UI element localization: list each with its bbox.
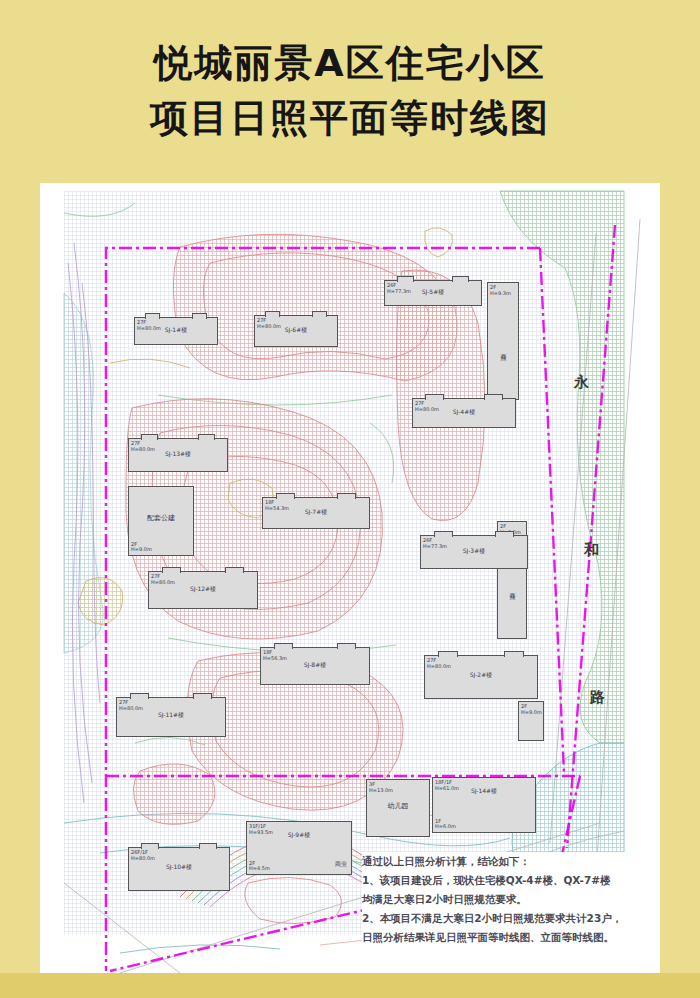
building-spec-label: 27F H=80.0m bbox=[137, 320, 161, 332]
building-name-label: SJ-3#楼 bbox=[463, 546, 485, 555]
building-spec-label: 2F H=9.0m bbox=[521, 704, 542, 716]
building-sj-1: 27F H=80.0m SJ-1#楼 bbox=[134, 317, 218, 345]
notes-line: 通过以上日照分析计算，结论如下： bbox=[362, 852, 658, 871]
building-sj-11: 27F H=80.0m SJ-11#楼 bbox=[116, 697, 226, 737]
building-spec-label: 18F/1F H=61.0m bbox=[435, 780, 459, 792]
notes-line: 2、本项目不满足大寒日2小时日照规范要求共计23户， bbox=[362, 909, 658, 928]
building-spec-label: 27F H=80.0m bbox=[119, 700, 143, 712]
building-name-label: SJ-12#楼 bbox=[190, 584, 216, 593]
conclusion-notes: 通过以上日照分析计算，结论如下： 1、该项目建设后，现状住宅楼QX-4#楼、QX… bbox=[362, 852, 658, 956]
building-name-label: SJ-5#楼 bbox=[422, 288, 444, 297]
building-sj-14: 18F/1F H=61.0m SJ-14#楼 1F H=6.0m bbox=[432, 777, 536, 833]
building-name-label: SJ-13#楼 bbox=[165, 449, 191, 458]
building-spec-label: 27F H=80.0m bbox=[151, 574, 175, 586]
building-name-label: 商业 bbox=[499, 348, 508, 352]
building-name-label: SJ-1#楼 bbox=[165, 325, 187, 334]
building-sj-13: 27F H=80.0m SJ-13#楼 bbox=[128, 438, 228, 472]
building-podium-label: 1F H=6.0m bbox=[435, 819, 456, 831]
building-sj-12: 27F H=80.0m SJ-12#楼 bbox=[148, 571, 258, 609]
page-title: 悦城丽景A区住宅小区 项目日照平面等时线图 bbox=[0, 36, 700, 146]
building-name-label: SJ-2#楼 bbox=[470, 671, 492, 680]
notes-line: 1、该项目建设后，现状住宅楼QX-4#楼、QX-7#楼 bbox=[362, 871, 658, 890]
building-spec-label: 27F H=80.0m bbox=[131, 441, 155, 453]
building-spec-label: 26F H=77.3m bbox=[423, 538, 447, 550]
building-sj-6: 27F H=80.0m SJ-6#楼 bbox=[254, 315, 338, 347]
building-sj-3: 26F H=77.3m SJ-3#楼 bbox=[420, 535, 528, 569]
building-name-label: SJ-4#楼 bbox=[453, 407, 475, 416]
building-sj-9: 31F/1F H=93.5m SJ-9#楼 2F H=4.5m 商业 bbox=[246, 821, 352, 875]
building-spec-label: 18F H=54.3m bbox=[265, 500, 289, 512]
building-name-label: 幼儿园 bbox=[388, 801, 409, 811]
building-name-label: SJ-6#楼 bbox=[285, 325, 307, 334]
building-spec-label: 2F H=9.0m bbox=[131, 542, 152, 554]
title-line-2: 项目日照平面等时线图 bbox=[0, 91, 700, 146]
building-spec-label: 27F H=80.0m bbox=[427, 658, 451, 670]
building-spec-label: 27F H=80.0m bbox=[257, 318, 281, 330]
building-name-label: 商业 bbox=[508, 587, 517, 591]
building-sj-2: 27F H=80.0m SJ-2#楼 bbox=[424, 655, 538, 699]
street-name-char-lu: 路 bbox=[590, 688, 605, 707]
building-spec-label: 31F/1F H=93.5m bbox=[249, 824, 273, 836]
building-spec-label: 26F/1F H=80.0m bbox=[131, 850, 155, 862]
building-name-label: SJ-8#楼 bbox=[304, 660, 326, 669]
building-sj-5: 26F H=77.3m SJ-5#楼 bbox=[384, 280, 482, 306]
building-spec-label: 26F H=77.3m bbox=[387, 283, 411, 295]
building-commercial-label: 商业 bbox=[335, 860, 347, 869]
building-commercial-north: 2F H=9.3m 商业 bbox=[487, 282, 519, 400]
site-plan-panel: 27F H=80.0m SJ-1#楼 27F H=80.0m SJ-6#楼 26… bbox=[40, 183, 660, 973]
street-name-char-yong: 永 bbox=[574, 373, 589, 392]
notes-line: 均满足大寒日2小时日照规范要求。 bbox=[362, 890, 658, 909]
building-spec-label: 27F H=80.0m bbox=[415, 401, 439, 413]
building-sj-8: 18F H=56.3m SJ-8#楼 bbox=[260, 647, 370, 685]
building-spec-label: 2F H=9.3m bbox=[490, 285, 511, 297]
building-commercial-stub: 2F H=9.0m bbox=[518, 701, 544, 741]
page-bottom-band bbox=[0, 973, 700, 998]
building-name-label: 配套公建 bbox=[147, 513, 175, 523]
building-spec-label: 3F H=13.0m bbox=[369, 782, 393, 794]
building-sj-10: 26F/1F H=80.0m SJ-10#楼 bbox=[128, 847, 230, 891]
building-name-label: SJ-11#楼 bbox=[158, 711, 184, 720]
building-podium-label: 2F H=4.5m bbox=[249, 861, 270, 873]
building-support-public: 2F H=9.0m 配套公建 bbox=[128, 486, 194, 556]
street-name-char-he: 和 bbox=[584, 541, 599, 560]
notes-line: 日照分析结果详见日照平面等时线图、立面等时线图。 bbox=[362, 928, 658, 947]
building-sj-4: 27F H=80.0m SJ-4#楼 bbox=[412, 398, 516, 428]
building-name-label: SJ-7#楼 bbox=[305, 507, 327, 516]
building-kindergarten: 3F H=13.0m 幼儿园 bbox=[366, 779, 430, 837]
title-line-1: 悦城丽景A区住宅小区 bbox=[0, 36, 700, 91]
building-sj-7: 18F H=54.3m SJ-7#楼 bbox=[262, 497, 370, 529]
building-spec-label: 18F H=56.3m bbox=[263, 650, 287, 662]
building-name-label: SJ-14#楼 bbox=[471, 787, 497, 796]
building-name-label: SJ-9#楼 bbox=[288, 831, 310, 840]
building-name-label: SJ-10#楼 bbox=[166, 863, 192, 872]
